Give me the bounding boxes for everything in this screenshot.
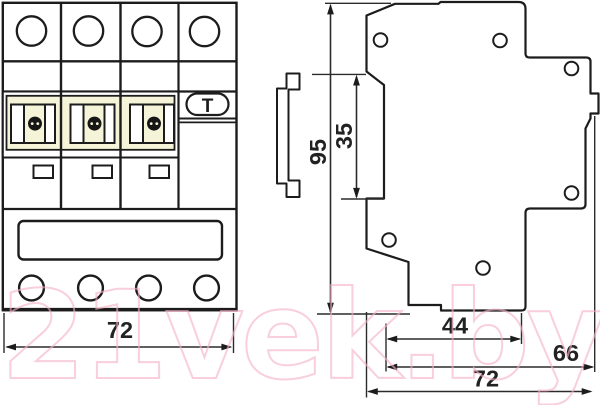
rivet-hole [493,34,507,48]
terminal-hole [132,17,161,46]
breaker-dimension-drawing: T 72 [0,0,600,405]
din-rail-profile-icon [277,74,300,198]
toggle-handles [11,105,174,144]
terminal-hole [17,16,46,45]
toggle-screw [28,117,42,131]
toggle-handle [130,105,174,144]
terminal-hole [74,16,103,45]
dimension-value-height: 95 [305,139,331,165]
rivet-hole [565,62,579,76]
dimension-value-din-rail: 35 [331,123,357,149]
rivet-hole [382,233,396,247]
test-button: T [187,94,229,118]
toggle-screw [147,117,161,131]
toggle-screw [88,117,102,131]
din-notch-dimension: 35 [312,74,384,199]
indicator-window [150,166,170,179]
toggle-handle [71,105,115,144]
technical-drawing-canvas: T 72 [0,0,600,405]
label-window [19,221,223,260]
indicator-windows [34,166,170,179]
indicator-window [93,166,113,179]
test-button-label: T [202,96,214,117]
toggle-handle [11,105,55,144]
terminal-hole [190,17,219,46]
indicator-window [34,166,54,179]
watermark-text: 21vek.by [1,265,600,405]
rivet-hole [374,33,388,47]
rivet-hole [565,186,579,200]
